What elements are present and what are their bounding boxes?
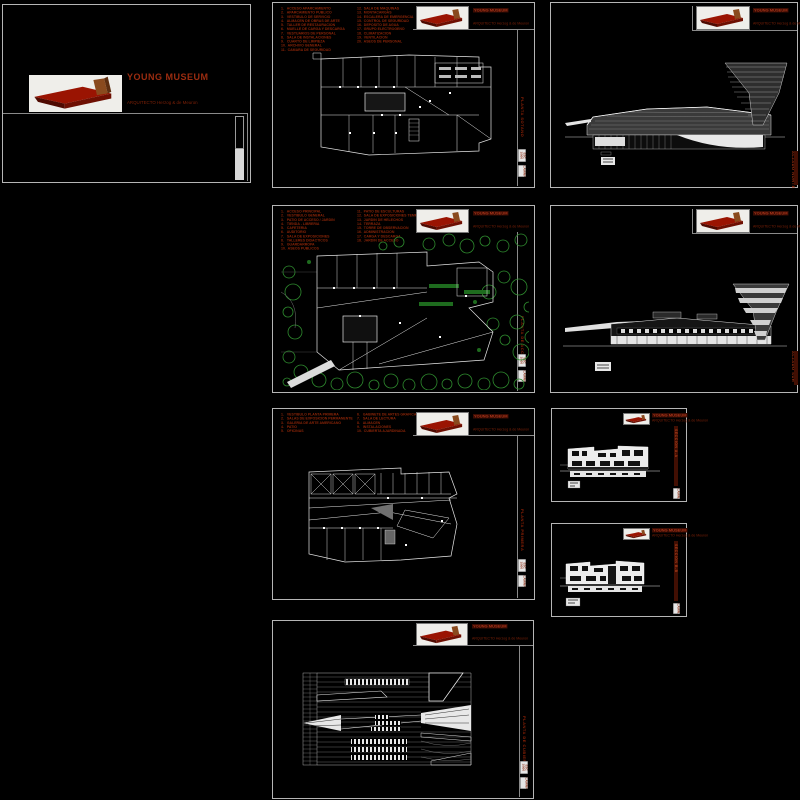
titleblock-project: YOUNG MUSEUM — [753, 8, 789, 13]
titleblock-underline — [413, 645, 533, 646]
titleblock-project: YOUNG MUSEUM — [473, 211, 509, 216]
section-b-drawing — [560, 556, 668, 608]
legend-item: 10. CUBIERTA AJARDINADA — [357, 430, 419, 434]
cover-stamp-outline — [235, 116, 244, 149]
sheet-section-b: YOUNG MUSEUM ARQUITECTO Herzog & de Meur… — [551, 523, 687, 617]
titleblock-frame-vline — [692, 6, 693, 30]
sheet-number-stamp: LAMINA — [520, 777, 528, 789]
legend-left-column: 1. VESTIBULO PLANTA PRIMERA2. SALAS DE E… — [281, 413, 353, 434]
museum-thumbnail — [696, 6, 750, 30]
museum-thumbnail — [623, 413, 650, 425]
sheet-side-label: PLANTA PRIMERA — [520, 509, 525, 551]
titleblock-project: YOUNG MUSEUM — [652, 413, 688, 418]
titleblock-architect: ARQUITECTO Herzog & de Meuron — [473, 428, 529, 432]
scale-stamp: ESC 1/500 — [520, 761, 528, 774]
basement-plan-drawing — [309, 43, 505, 167]
legend-right-column: 6. GABINETE DE ARTES GRAFICAS7. SALA DE … — [357, 413, 419, 434]
titleblock-architect: ARQUITECTO Herzog & de Meuron — [472, 637, 528, 641]
margin-strip-line — [519, 645, 520, 797]
margin-strip-line — [517, 29, 518, 186]
sheet-basement-plan: 1. ACCESO APARCAMIENTO2. APARCAMIENTO PU… — [272, 2, 535, 188]
museum-3d-render — [29, 75, 122, 112]
cover-frame-hline — [3, 113, 248, 114]
museum-3d-render — [697, 7, 749, 29]
site-plan-drawing — [279, 232, 529, 390]
roof-plan-drawing — [301, 671, 487, 769]
side-label-strip — [794, 151, 798, 185]
cover-render-image — [29, 75, 122, 112]
scale-stamp: ESC 1/500 — [518, 559, 526, 572]
museum-thumbnail — [623, 528, 650, 540]
titleblock-underline — [413, 29, 534, 30]
south-elevation-drawing — [557, 228, 793, 386]
museum-thumbnail — [416, 623, 468, 646]
titleblock-project: YOUNG MUSEUM — [473, 8, 509, 13]
sheet-side-label: SECCION A-A — [674, 429, 678, 458]
titleblock-architect: ARQUITECTO Herzog & de Meuron — [652, 419, 708, 423]
side-label-strip — [794, 351, 798, 385]
titleblock-project: YOUNG MUSEUM — [473, 414, 509, 419]
upper-plan-drawing — [301, 464, 479, 566]
sheet-number-stamp: LAMINA — [518, 575, 526, 587]
museum-3d-render — [417, 413, 468, 435]
titleblock-underline — [413, 435, 534, 436]
scale-stamp: ESC 1/500 — [518, 149, 526, 162]
titleblock-project: YOUNG MUSEUM — [753, 211, 789, 216]
museum-thumbnail — [416, 209, 469, 233]
museum-3d-render — [417, 624, 467, 645]
museum-3d-render — [624, 414, 649, 424]
titleblock-architect: ARQUITECTO Herzog & de Meuron — [473, 22, 529, 26]
sheet-side-label: PLANTA SOTANO — [520, 97, 525, 137]
margin-strip-line — [517, 435, 518, 598]
cover-frame-vline — [247, 113, 248, 181]
sheet-side-label: SECCION B-B — [674, 544, 678, 573]
section-a-drawing — [560, 439, 668, 491]
sheet-elevation-south: YOUNG MUSEUM ARQUITECTO Herzog & de Meur… — [550, 205, 798, 393]
sheet-number-stamp: LAMINA — [518, 165, 526, 177]
sheet-upper-plan: 1. VESTIBULO PLANTA PRIMERA2. SALAS DE E… — [272, 408, 535, 600]
cover-architect: ARQUITECTO Herzog & de Meuron — [127, 100, 198, 105]
dwg-preview-canvas: YOUNG MUSEUM ARQUITECTO Herzog & de Meur… — [0, 0, 800, 800]
sheet-section-a: YOUNG MUSEUM ARQUITECTO Herzog & de Meur… — [551, 408, 687, 502]
legend-right-column: 12. SALA DE MAQUINAS13. MONTACARGAS14. E… — [357, 7, 413, 44]
sheet-elevation-north: YOUNG MUSEUM ARQUITECTO Herzog & de Meur… — [550, 2, 798, 188]
sheet-site-plan: 1. ACCESO PRINCIPAL2. VESTIBULO GENERAL3… — [272, 205, 535, 393]
cover-project-title: YOUNG MUSEUM — [127, 72, 209, 82]
titleblock-architect: ARQUITECTO Herzog & de Meuron — [652, 534, 708, 538]
sheet-number-stamp: LAMINA — [673, 488, 680, 499]
titleblock-architect: ARQUITECTO Herzog & de Meuron — [753, 22, 800, 26]
sheet-number-stamp: LAMINA — [673, 603, 680, 614]
legend-item: 5. OFICINAS — [281, 430, 353, 434]
museum-3d-render — [417, 210, 468, 232]
titleblock-project: YOUNG MUSEUM — [472, 624, 508, 629]
sheet-cover: YOUNG MUSEUM ARQUITECTO Herzog & de Meur… — [2, 4, 251, 183]
titleblock-project: YOUNG MUSEUM — [652, 528, 688, 533]
sheet-roof-plan: YOUNG MUSEUM ARQUITECTO Herzog & de Meur… — [272, 620, 534, 799]
titleblock-architect: ARQUITECTO Herzog & de Meuron — [473, 225, 529, 229]
museum-thumbnail — [416, 6, 469, 30]
museum-thumbnail — [416, 412, 469, 436]
north-elevation-drawing — [557, 29, 793, 183]
museum-3d-render — [417, 7, 468, 29]
museum-3d-render — [624, 529, 649, 539]
cover-stamp-solid — [235, 149, 244, 180]
